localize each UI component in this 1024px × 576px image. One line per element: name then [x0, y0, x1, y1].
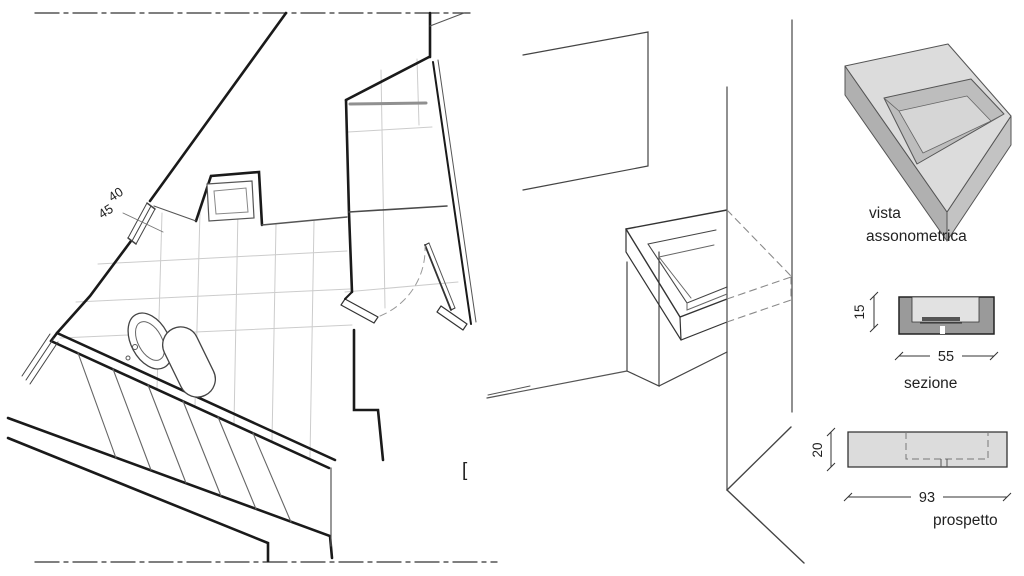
architectural-drawing-canvas: 40 45 — [0, 0, 1024, 576]
floor-line — [487, 371, 627, 398]
door-leaf — [425, 245, 451, 310]
dimension-height-20 — [827, 428, 835, 471]
recess-inner — [659, 245, 714, 298]
window-frame-line — [30, 342, 58, 384]
wall-room-right-inner — [433, 62, 471, 324]
mirror-frame — [523, 32, 648, 190]
cabinet-side-bottom — [659, 352, 727, 386]
door-swing-arc — [380, 246, 425, 316]
washbasin-plan — [154, 172, 347, 225]
tile-line — [76, 289, 350, 302]
basin-slab — [626, 210, 727, 340]
wall-top-diagonal — [150, 13, 286, 201]
window-1 — [123, 203, 163, 244]
tile-line — [417, 59, 419, 125]
section-drain-pipe — [940, 326, 945, 334]
door-jamb — [345, 292, 352, 299]
wall-corridor-upper — [8, 418, 332, 558]
elevation-label: prospetto — [933, 512, 998, 529]
wall-gray-band — [350, 103, 426, 104]
wall-room-bottom-return — [354, 330, 383, 460]
wall-inner-edge — [154, 206, 196, 221]
slab-top-edge — [626, 210, 727, 229]
wall-left — [57, 241, 131, 333]
wall-base-line — [727, 427, 791, 490]
axonometric-view: vista assonometrica — [845, 44, 1011, 245]
wall-room-top — [346, 57, 429, 100]
tile-line — [381, 70, 385, 308]
basin-cabinet — [627, 252, 727, 386]
axonometric-label-line2: assonometrica — [866, 228, 967, 245]
section-drain-plate — [922, 317, 960, 321]
hidden-edge — [727, 300, 791, 322]
stray-bracket-glyph: [ — [462, 460, 468, 481]
cabinet-front — [627, 252, 659, 386]
window-frame-line — [132, 206, 151, 241]
elevation-view: 20 93 prospetto — [810, 428, 1011, 529]
wall-room-left — [346, 100, 352, 292]
dimension-93-text: 93 — [919, 490, 935, 506]
dimension-height-15 — [870, 292, 878, 332]
dimension-leader-line — [123, 213, 163, 232]
floor-divider-line — [349, 206, 447, 212]
tile-line — [348, 127, 432, 132]
wall-corner — [51, 333, 57, 341]
tile-line — [98, 251, 347, 264]
tile-line — [272, 224, 276, 441]
axonometric-label-line1: vista — [869, 205, 901, 222]
perspective-view — [487, 20, 804, 563]
section-label: sezione — [904, 375, 957, 392]
wall-room-right-outer — [438, 60, 476, 322]
tile-line — [234, 209, 238, 424]
section-view: 15 55 sezione — [852, 292, 998, 392]
recess-rim — [648, 230, 716, 244]
tile-line — [60, 325, 352, 338]
dimension-15-text: 15 — [852, 304, 867, 319]
bidet-fitting — [133, 345, 138, 350]
door-leaf-edge — [429, 243, 455, 308]
bidet-fitting — [126, 356, 130, 360]
wall-base-line — [727, 490, 804, 563]
wall-inner-edge — [262, 217, 347, 225]
tile-line — [310, 221, 314, 458]
tile-grid — [60, 59, 458, 458]
floor-plan: 40 45 — [8, 13, 497, 562]
dimension-40: 40 — [105, 184, 125, 204]
dimension-55-text: 55 — [938, 349, 954, 365]
slab-corner-edge — [680, 317, 681, 340]
door-threshold-left — [341, 299, 378, 323]
window-frame-line — [128, 203, 147, 238]
window-frame-line — [26, 338, 54, 380]
hidden-edge — [727, 277, 791, 299]
slab-top-edge — [626, 229, 727, 317]
wall-thin-top-right — [430, 13, 464, 26]
window-frame-line — [22, 334, 50, 376]
hidden-edge — [727, 210, 791, 276]
door-leaf-cap — [425, 243, 455, 310]
dimension-20-text: 20 — [810, 442, 825, 457]
basin-recess — [648, 230, 727, 310]
elevation-body — [848, 432, 1007, 467]
basin-hidden-dashed — [727, 210, 791, 322]
